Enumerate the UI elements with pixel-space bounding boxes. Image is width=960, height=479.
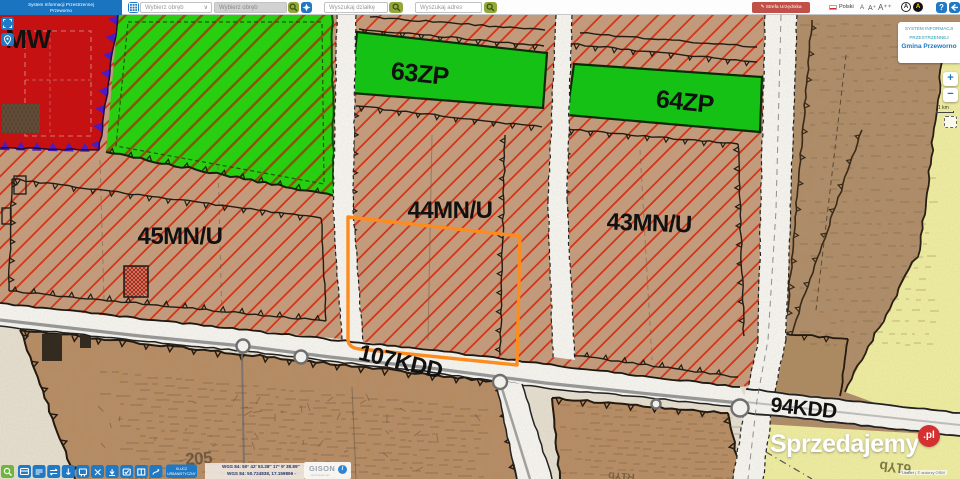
svg-text:URBANISTYCZNY: URBANISTYCZNY xyxy=(167,472,196,476)
svg-text:KLUCZ: KLUCZ xyxy=(176,467,187,471)
svg-text:44MN/U: 44MN/U xyxy=(407,197,492,224)
svg-text:45MN/U: 45MN/U xyxy=(137,223,222,250)
svg-text:43MN/U: 43MN/U xyxy=(606,209,692,239)
